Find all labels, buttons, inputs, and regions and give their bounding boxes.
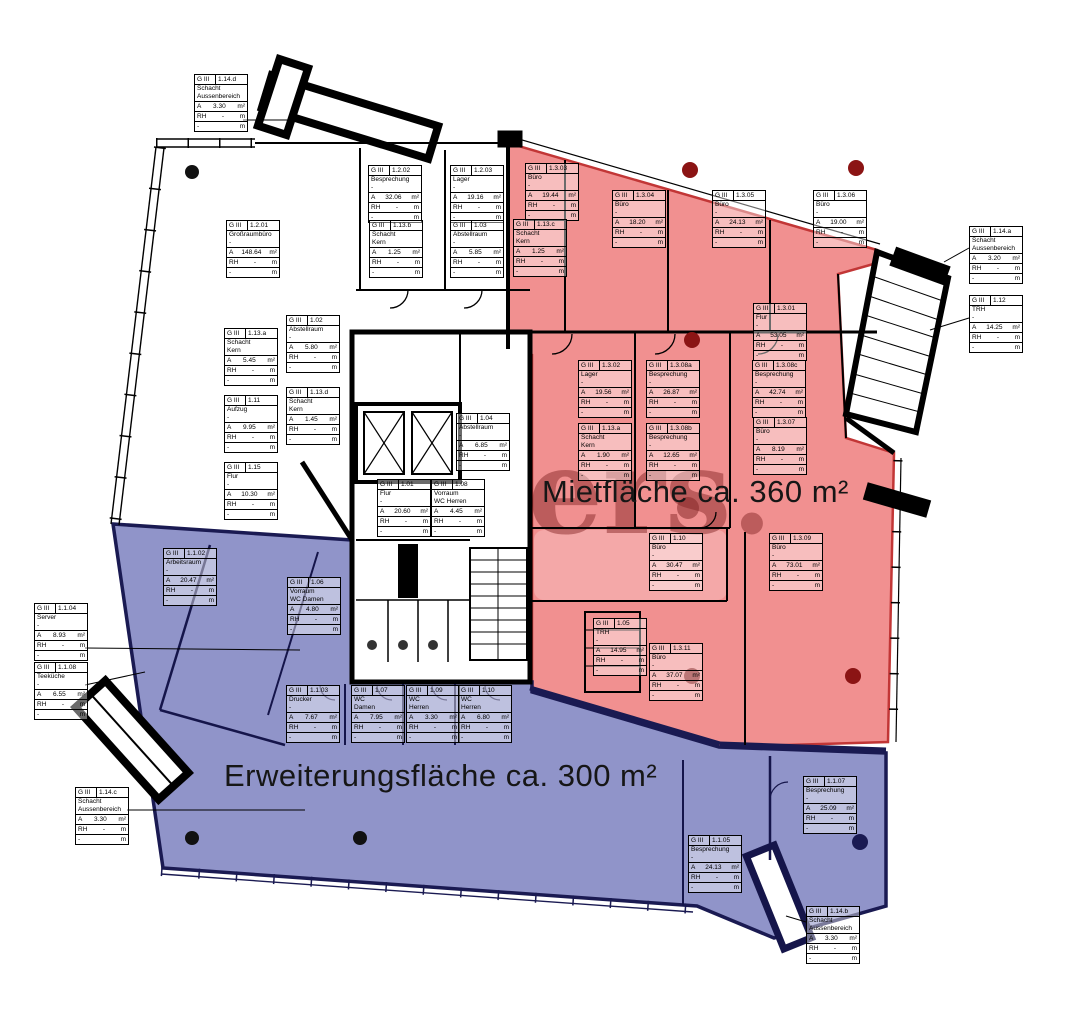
- room-name: SchachtKern: [370, 231, 422, 248]
- room-rh-row: RH-m: [647, 397, 699, 407]
- room-name: SchachtKern: [579, 434, 631, 451]
- room-code: 1.10: [671, 534, 688, 543]
- room-rh-row: RH-m: [195, 111, 247, 121]
- room-code: 1.1.04: [56, 604, 78, 613]
- room-name: Büro-: [754, 428, 806, 445]
- room-code: 1.3.08b: [668, 424, 694, 433]
- room-rh-row: RH-m: [76, 824, 128, 834]
- room-rh-row: RH-m: [689, 872, 741, 882]
- room-extra-row: -m: [288, 624, 340, 634]
- room-extra-row: -m: [647, 407, 699, 417]
- room-area-row: A6.85m²: [457, 441, 509, 450]
- room-label: G III 1.1.04 Server- A8.93m² RH-m -m: [34, 603, 88, 661]
- room-extra-row: -m: [76, 834, 128, 844]
- room-area-row: A4.45m²: [432, 507, 484, 516]
- room-rh-row: RH-m: [287, 424, 339, 434]
- room-rh-row: RH-m: [225, 432, 277, 442]
- room-label-prefix: G III: [287, 686, 308, 695]
- room-code: 1.3.06: [835, 191, 857, 200]
- room-code: 1.13.b: [391, 221, 413, 230]
- room-label-prefix: G III: [352, 686, 373, 695]
- room-area-row: A18.20m²: [613, 218, 665, 227]
- room-area-row: A1.25m²: [370, 248, 422, 257]
- room-label-prefix: G III: [288, 578, 309, 587]
- room-label: G III 1.3.08b Besprechung- A12.65m² RH-m…: [646, 423, 700, 481]
- room-label: G III 1.15 Flur- A10.30m² RH-m -m: [224, 462, 278, 520]
- room-extra-row: -m: [613, 237, 665, 247]
- room-extra-row: -m: [432, 526, 484, 536]
- room-name: WCHerren: [407, 696, 459, 713]
- room-code: 1.1.07: [825, 777, 847, 786]
- room-name: SchachtAussenbereich: [195, 85, 247, 102]
- room-label-prefix: G III: [647, 424, 668, 433]
- room-code: 1.05: [615, 619, 632, 628]
- room-code: 1.3.08c: [774, 361, 799, 370]
- erweiterungsflaeche-label: Erweiterungsfläche ca. 300 m²: [224, 758, 657, 794]
- stairs-center: [470, 548, 527, 660]
- room-area-row: A19.56m²: [579, 388, 631, 397]
- room-name: Besprechung-: [369, 176, 421, 193]
- room-area-row: A4.80m²: [288, 605, 340, 614]
- room-name: VorraumWC Herren: [432, 490, 484, 507]
- room-label-prefix: G III: [459, 686, 480, 695]
- room-label-prefix: G III: [407, 686, 428, 695]
- room-label: G III 1.2.02 Besprechung- A32.06m² RH-m …: [368, 165, 422, 223]
- room-name: Abstellraum-: [457, 424, 509, 441]
- room-code: 1.15: [246, 463, 263, 472]
- room-extra-row: -m: [594, 665, 646, 675]
- room-label-prefix: G III: [451, 221, 472, 230]
- room-code: 1.14.b: [828, 907, 850, 916]
- room-extra-row: -m: [514, 266, 566, 276]
- room-area-row: A3.30m²: [195, 102, 247, 111]
- room-code: 1.13.a: [246, 329, 268, 338]
- room-area-row: A12.65m²: [647, 451, 699, 460]
- room-label-prefix: G III: [970, 227, 991, 236]
- room-extra-row: -m: [650, 690, 702, 700]
- room-label: G III 1.05 TRH- A14.95m² RH-m -m: [593, 618, 647, 676]
- room-label: G III 1.09 WCHerren A3.30m² RH-m -m: [406, 685, 460, 743]
- room-extra-row: -m: [225, 442, 277, 452]
- room-extra-row: -m: [287, 362, 339, 372]
- room-label: G III 1.13.a SchachtKern A1.90m² RH-m -m: [578, 423, 632, 481]
- room-extra-row: -m: [352, 732, 404, 742]
- room-label-prefix: G III: [594, 619, 615, 628]
- room-label: G III 1.11 Aufzug- A9.95m² RH-m -m: [224, 395, 278, 453]
- room-label-prefix: G III: [76, 788, 97, 797]
- room-extra-row: -m: [407, 732, 459, 742]
- room-label: G III 1.1.03 Drucker- A7.67m² RH-m -m: [286, 685, 340, 743]
- room-rh-row: RH-m: [407, 722, 459, 732]
- room-label: G III 1.13.b SchachtKern A1.25m² RH-m -m: [369, 220, 423, 278]
- room-rh-row: RH-m: [970, 263, 1022, 273]
- room-rh-row: RH-m: [287, 352, 339, 362]
- room-rh-row: RH-m: [650, 680, 702, 690]
- room-area-row: A5.45m²: [225, 356, 277, 365]
- room-extra-row: -m: [225, 375, 277, 385]
- room-label-prefix: G III: [457, 414, 478, 423]
- room-label: G III 1.2.01 Großraumbüro- A148.64m² RH-…: [226, 220, 280, 278]
- room-rh-row: RH-m: [451, 202, 503, 212]
- room-code: 1.1.08: [56, 663, 78, 672]
- room-name: Büro-: [814, 201, 866, 218]
- room-rh-row: RH-m: [369, 202, 421, 212]
- room-name: Arbeitsraum-: [164, 559, 216, 576]
- room-extra-row: -m: [287, 434, 339, 444]
- room-name: Büro-: [613, 201, 665, 218]
- room-area-row: A24.13m²: [713, 218, 765, 227]
- room-extra-row: -m: [227, 267, 279, 277]
- room-rh-row: RH-m: [35, 640, 87, 650]
- room-rh-row: RH-m: [754, 454, 806, 464]
- room-name: WCDamen: [352, 696, 404, 713]
- room-name: Lager-: [579, 371, 631, 388]
- room-label-prefix: G III: [526, 164, 547, 173]
- room-extra-row: -m: [378, 526, 430, 536]
- room-name: Besprechung-: [647, 434, 699, 451]
- room-label-prefix: G III: [579, 361, 600, 370]
- room-name: Büro-: [770, 544, 822, 561]
- core-shaft-block: [398, 544, 418, 598]
- room-code: 1.2.03: [472, 166, 494, 175]
- room-label-prefix: G III: [514, 220, 535, 229]
- room-label: G III 1.3.08c Besprechung- A42.74m² RH-m…: [752, 360, 806, 418]
- room-code: 1.3.08a: [668, 361, 694, 370]
- room-rh-row: RH-m: [288, 614, 340, 624]
- room-extra-row: -m: [754, 464, 806, 474]
- room-label: G III 1.07 WCDamen A7.95m² RH-m -m: [351, 685, 405, 743]
- room-area-row: A3.20m²: [970, 254, 1022, 263]
- room-area-row: A6.55m²: [35, 690, 87, 699]
- room-label-prefix: G III: [369, 166, 390, 175]
- room-label: G III 1.3.09 Büro- A73.01m² RH-m -m: [769, 533, 823, 591]
- room-label: G III 1.08 VorraumWC Herren A4.45m² RH-m…: [431, 479, 485, 537]
- room-area-row: A30.47m²: [650, 561, 702, 570]
- room-extra-row: -m: [970, 273, 1022, 283]
- room-code: 1.02: [308, 316, 325, 325]
- room-name: Büro-: [713, 201, 765, 218]
- room-area-row: A14.95m²: [594, 646, 646, 655]
- room-rh-row: RH-m: [225, 499, 277, 509]
- room-name: Abstellraum-: [287, 326, 339, 343]
- room-label-prefix: G III: [807, 907, 828, 916]
- room-label-prefix: G III: [164, 549, 185, 558]
- room-extra-row: -m: [770, 580, 822, 590]
- room-label-prefix: G III: [647, 361, 668, 370]
- room-rh-row: RH-m: [713, 227, 765, 237]
- room-rh-row: RH-m: [164, 585, 216, 595]
- room-name: SchachtAussenbereich: [76, 798, 128, 815]
- room-rh-row: RH-m: [370, 257, 422, 267]
- room-area-row: A3.30m²: [807, 934, 859, 943]
- room-label-prefix: G III: [225, 396, 246, 405]
- room-name: Flur-: [225, 473, 277, 490]
- room-rh-row: RH-m: [753, 397, 805, 407]
- room-extra-row: -m: [457, 460, 509, 470]
- room-name: TRH-: [970, 306, 1022, 323]
- room-extra-row: -m: [754, 350, 806, 360]
- room-code: 1.14.c: [97, 788, 119, 797]
- room-label-prefix: G III: [754, 418, 775, 427]
- room-extra-row: -m: [35, 650, 87, 660]
- room-name: SchachtKern: [514, 230, 566, 247]
- room-label-prefix: G III: [579, 424, 600, 433]
- room-name: Besprechung-: [647, 371, 699, 388]
- room-extra-row: -m: [459, 732, 511, 742]
- room-label: G III 1.3.02 Lager- A19.56m² RH-m -m: [578, 360, 632, 418]
- room-area-row: A14.25m²: [970, 323, 1022, 332]
- room-label-prefix: G III: [814, 191, 835, 200]
- room-name: Drucker-: [287, 696, 339, 713]
- room-area-row: A25.09m²: [804, 804, 856, 813]
- room-code: 1.09: [428, 686, 445, 695]
- room-name: Besprechung-: [753, 371, 805, 388]
- room-label: G III 1.14.d SchachtAussenbereich A3.30m…: [194, 74, 248, 132]
- room-area-row: A5.85m²: [451, 248, 503, 257]
- mietflaeche-label: Mietfläche ca. 360 m²: [542, 474, 849, 510]
- room-extra-row: -m: [35, 709, 87, 719]
- room-code: 1.14.d: [216, 75, 238, 84]
- room-rh-row: RH-m: [970, 332, 1022, 342]
- room-extra-row: -m: [807, 953, 859, 963]
- room-label: G III 1.2.03 Lager- A19.16m² RH-m -m: [450, 165, 504, 223]
- room-area-row: A73.01m²: [770, 561, 822, 570]
- room-rh-row: RH-m: [287, 722, 339, 732]
- room-code: 1.2.01: [248, 221, 270, 230]
- room-area-row: A32.06m²: [369, 193, 421, 202]
- room-name: Abstellraum-: [451, 231, 503, 248]
- room-area-row: A20.47m²: [164, 576, 216, 585]
- room-label-prefix: G III: [613, 191, 634, 200]
- room-code: 1.3.05: [734, 191, 756, 200]
- room-rh-row: RH-m: [378, 516, 430, 526]
- room-rh-row: RH-m: [352, 722, 404, 732]
- room-label: G III 1.13.d SchachtKern A1.45m² RH-m -m: [286, 387, 340, 445]
- room-label-prefix: G III: [195, 75, 216, 84]
- room-extra-row: -m: [579, 407, 631, 417]
- room-label: G III 1.3.04 Büro- A18.20m² RH-m -m: [612, 190, 666, 248]
- room-extra-row: -m: [753, 407, 805, 417]
- room-label: G III 1.13.a SchachtKern A5.45m² RH-m -m: [224, 328, 278, 386]
- room-rh-row: RH-m: [807, 943, 859, 953]
- room-label-prefix: G III: [225, 463, 246, 472]
- room-label-prefix: G III: [753, 361, 774, 370]
- room-area-row: A37.07m²: [650, 671, 702, 680]
- room-name: Lager-: [451, 176, 503, 193]
- room-name: TRH-: [594, 629, 646, 646]
- room-name: VorraumWC Damen: [288, 588, 340, 605]
- room-label: G III 1.14.b SchachtAussenbereich A3.30m…: [806, 906, 860, 964]
- room-label: G III 1.02 Abstellraum- A5.80m² RH-m -m: [286, 315, 340, 373]
- room-name: Besprechung-: [689, 846, 741, 863]
- room-code: 1.11: [246, 396, 262, 405]
- room-label-prefix: G III: [287, 388, 308, 397]
- room-label-prefix: G III: [970, 296, 991, 305]
- room-label-prefix: G III: [432, 480, 453, 489]
- room-area-row: A1.25m²: [514, 247, 566, 256]
- room-code: 1.08: [453, 480, 470, 489]
- room-code: 1.3.11: [671, 644, 693, 653]
- room-name: Flur-: [378, 490, 430, 507]
- room-label-prefix: G III: [770, 534, 791, 543]
- room-label-prefix: G III: [35, 604, 56, 613]
- room-label: G III 1.1.02 Arbeitsraum- A20.47m² RH-m …: [163, 548, 217, 606]
- room-label-prefix: G III: [378, 480, 399, 489]
- room-area-row: A1.45m²: [287, 415, 339, 424]
- room-code: 1.3.04: [634, 191, 656, 200]
- room-code: 1.3.02: [600, 361, 622, 370]
- room-label: G III 1.03 Abstellraum- A5.85m² RH-m -m: [450, 220, 504, 278]
- room-area-row: A7.67m²: [287, 713, 339, 722]
- room-area-row: A8.19m²: [754, 445, 806, 454]
- room-rh-row: RH-m: [770, 570, 822, 580]
- room-label: G III 1.13.c SchachtKern A1.25m² RH-m -m: [513, 219, 567, 277]
- room-name: Teeküche-: [35, 673, 87, 690]
- room-label: G III 1.3.07 Büro- A8.19m² RH-m -m: [753, 417, 807, 475]
- room-code: 1.3.03: [547, 164, 569, 173]
- room-extra-row: -m: [287, 732, 339, 742]
- room-name: SchachtKern: [287, 398, 339, 415]
- room-rh-row: RH-m: [432, 516, 484, 526]
- room-name: Büro-: [650, 544, 702, 561]
- room-code: 1.03: [472, 221, 489, 230]
- room-label: G III 1.3.11 Büro- A37.07m² RH-m -m: [649, 643, 703, 701]
- room-rh-row: RH-m: [814, 227, 866, 237]
- room-label: G III 1.14.c SchachtAussenbereich A3.30m…: [75, 787, 129, 845]
- elevator-shafts: [356, 404, 460, 482]
- room-area-row: A26.87m²: [647, 388, 699, 397]
- room-label: G III 1.3.05 Büro- A24.13m² RH-m -m: [712, 190, 766, 248]
- room-name: SchachtAussenbereich: [807, 917, 859, 934]
- room-extra-row: -m: [225, 509, 277, 519]
- floor-plan-drawing: liers.: [0, 0, 1078, 1024]
- room-area-row: A19.16m²: [451, 193, 503, 202]
- room-label-prefix: G III: [287, 316, 308, 325]
- room-label: G III 1.10 Büro- A30.47m² RH-m -m: [649, 533, 703, 591]
- room-label: G III 1.04 Abstellraum- A6.85m² RH-m -m: [456, 413, 510, 471]
- room-extra-row: -m: [370, 267, 422, 277]
- room-area-row: A8.93m²: [35, 631, 87, 640]
- room-extra-row: -m: [804, 823, 856, 833]
- room-label: G III 1.01 Flur- A20.60m² RH-m -m: [377, 479, 431, 537]
- room-name: Aufzug-: [225, 406, 277, 423]
- room-label: G III 1.3.03 Büro- A19.44m² RH-m -m: [525, 163, 579, 221]
- room-area-row: A3.30m²: [407, 713, 459, 722]
- room-code: 1.04: [478, 414, 495, 423]
- room-label-prefix: G III: [35, 663, 56, 672]
- room-extra-row: -m: [689, 882, 741, 892]
- room-area-row: A19.00m²: [814, 218, 866, 227]
- room-extra-row: -m: [713, 237, 765, 247]
- room-rh-row: RH-m: [225, 365, 277, 375]
- room-rh-row: RH-m: [514, 256, 566, 266]
- room-rh-row: RH-m: [804, 813, 856, 823]
- room-code: 1.13.c: [535, 220, 557, 229]
- room-label: G III 1.10 WCHerren A6.80m² RH-m -m: [458, 685, 512, 743]
- room-label-prefix: G III: [227, 221, 248, 230]
- room-area-row: A148.64m²: [227, 248, 279, 257]
- room-area-row: A19.44m²: [526, 191, 578, 200]
- room-label: G III 1.06 VorraumWC Damen A4.80m² RH-m …: [287, 577, 341, 635]
- room-extra-row: -m: [650, 580, 702, 590]
- room-rh-row: RH-m: [526, 200, 578, 210]
- room-area-row: A24.13m²: [689, 863, 741, 872]
- floor-plan: liers.: [0, 0, 1078, 1024]
- room-label: G III 1.14.a SchachtAussenbereich A3.20m…: [969, 226, 1023, 284]
- room-name: Flur-: [754, 314, 806, 331]
- room-area-row: A53.05m²: [754, 331, 806, 340]
- room-rh-row: RH-m: [457, 450, 509, 460]
- room-label-prefix: G III: [225, 329, 246, 338]
- room-label-prefix: G III: [804, 777, 825, 786]
- room-rh-row: RH-m: [579, 460, 631, 470]
- room-label: G III 1.1.07 Besprechung- A25.09m² RH-m …: [803, 776, 857, 834]
- room-code: 1.07: [373, 686, 390, 695]
- room-area-row: A42.74m²: [753, 388, 805, 397]
- room-rh-row: RH-m: [754, 340, 806, 350]
- room-rh-row: RH-m: [459, 722, 511, 732]
- room-area-row: A20.60m²: [378, 507, 430, 516]
- room-area-row: A5.80m²: [287, 343, 339, 352]
- room-label-prefix: G III: [689, 836, 710, 845]
- room-area-row: A9.95m²: [225, 423, 277, 432]
- room-label: G III 1.3.08a Besprechung- A26.87m² RH-m…: [646, 360, 700, 418]
- room-rh-row: RH-m: [647, 460, 699, 470]
- room-label-prefix: G III: [713, 191, 734, 200]
- room-rh-row: RH-m: [35, 699, 87, 709]
- room-code: 1.10: [480, 686, 497, 695]
- room-code: 1.3.09: [791, 534, 813, 543]
- room-name: Büro-: [526, 174, 578, 191]
- room-code: 1.3.01: [775, 304, 797, 313]
- room-code: 1.12: [991, 296, 1008, 305]
- room-area-row: A10.30m²: [225, 490, 277, 499]
- room-name: Großraumbüro-: [227, 231, 279, 248]
- room-code: 1.1.03: [308, 686, 330, 695]
- room-label: G III 1.3.01 Flur- A53.05m² RH-m -m: [753, 303, 807, 361]
- room-name: SchachtAussenbereich: [970, 237, 1022, 254]
- room-area-row: A3.30m²: [76, 815, 128, 824]
- room-code: 1.1.02: [185, 549, 207, 558]
- room-rh-row: RH-m: [594, 655, 646, 665]
- room-rh-row: RH-m: [579, 397, 631, 407]
- room-area-row: A6.80m²: [459, 713, 511, 722]
- room-name: Server-: [35, 614, 87, 631]
- room-label-prefix: G III: [754, 304, 775, 313]
- room-label-prefix: G III: [650, 534, 671, 543]
- room-code: 1.06: [309, 578, 326, 587]
- room-label: G III 1.1.08 Teeküche- A6.55m² RH-m -m: [34, 662, 88, 720]
- room-extra-row: -m: [164, 595, 216, 605]
- room-code: 1.14.a: [991, 227, 1013, 236]
- room-code: 1.01: [399, 480, 416, 489]
- room-code: 1.3.07: [775, 418, 797, 427]
- room-label-prefix: G III: [451, 166, 472, 175]
- room-label: G III 1.1.05 Besprechung- A24.13m² RH-m …: [688, 835, 742, 893]
- room-extra-row: -m: [970, 342, 1022, 352]
- room-code: 1.2.02: [390, 166, 412, 175]
- room-name: Büro-: [650, 654, 702, 671]
- room-label-prefix: G III: [370, 221, 391, 230]
- room-area-row: A7.95m²: [352, 713, 404, 722]
- room-code: 1.13.a: [600, 424, 622, 433]
- room-label: G III 1.3.06 Büro- A19.00m² RH-m -m: [813, 190, 867, 248]
- room-name: Besprechung-: [804, 787, 856, 804]
- room-extra-row: -m: [195, 121, 247, 131]
- room-code: 1.1.05: [710, 836, 732, 845]
- room-label: G III 1.12 TRH- A14.25m² RH-m -m: [969, 295, 1023, 353]
- room-code: 1.13.d: [308, 388, 330, 397]
